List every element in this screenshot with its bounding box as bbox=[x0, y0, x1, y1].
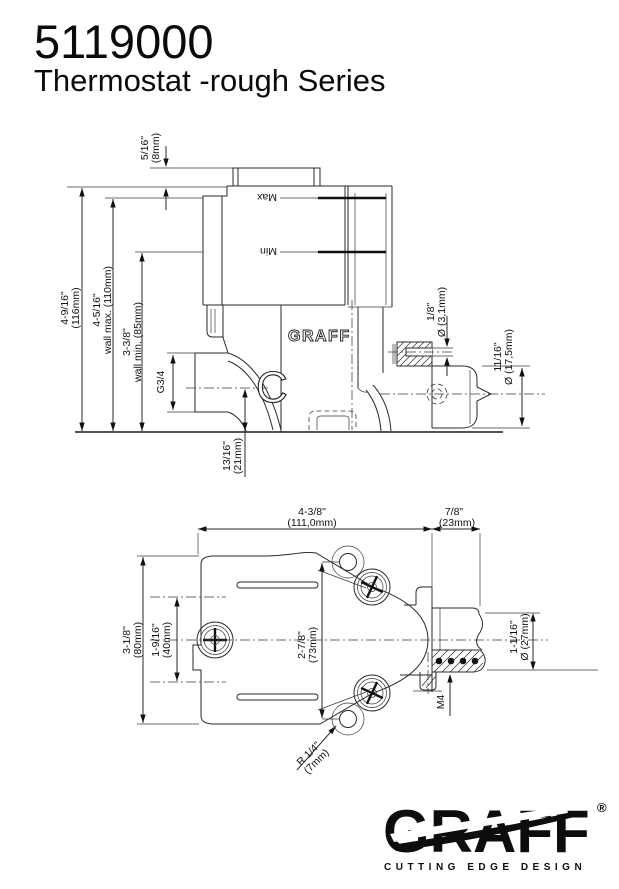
dim-tabs-spacing: 2-7/8" (73mm) bbox=[296, 627, 319, 663]
dim-holes-spacing: 1-9/16" (40mm) bbox=[150, 622, 173, 658]
dim-total-height-mm: (116mm) bbox=[70, 287, 82, 328]
side-section-view: Max Min 4-9/16" (116mm) 4-5/16" wall max… bbox=[59, 133, 545, 477]
dim-plate-height-mm: (8mm) bbox=[150, 133, 162, 163]
technical-drawing-canvas: Max Min 4-9/16" (116mm) 4-5/16" wall max… bbox=[0, 0, 619, 889]
dim-holes-spacing-mm: (40mm) bbox=[161, 622, 173, 658]
logo-registered-mark: ® bbox=[597, 800, 607, 815]
dim-tabs-spacing-mm: (73mm) bbox=[307, 627, 319, 663]
dim-body-height: 3-1/8" (80mm) bbox=[121, 622, 144, 658]
max-label: Max bbox=[256, 191, 277, 203]
max-depth-marker: Max bbox=[256, 191, 386, 203]
dim-outlet-dia: 1-1/16" Ø (27mm) bbox=[508, 613, 531, 660]
dim-body-width: 4-3/8" (111,0mm) bbox=[287, 506, 336, 529]
dim-center-offset-mm: (21mm) bbox=[232, 438, 244, 474]
dim-outlet-length-mm: (23mm) bbox=[439, 517, 475, 529]
dim-radius: R 1/4" (7mm) bbox=[294, 739, 332, 777]
dim-wall-max-mm: wall max. (110mm) bbox=[102, 266, 114, 355]
dim-plate-height: 5/16" (8mm) bbox=[139, 133, 162, 163]
port-thread-text: G3/4 bbox=[155, 370, 167, 393]
port-thread-label: G3/4 bbox=[155, 370, 167, 393]
plan-view-linework bbox=[150, 546, 548, 735]
dim-outlet-dia-mm: Ø (27mm) bbox=[519, 613, 531, 660]
screw-thread-label: M4 bbox=[435, 695, 447, 710]
dim-wall-min-mm: wall min. (85mm) bbox=[132, 302, 144, 383]
dim-pilot-hole-mm: Ø (3,1mm) bbox=[436, 287, 448, 337]
plan-view: 4-3/8" (111,0mm) 7/8" (23mm) 3-1/8" (80m… bbox=[121, 506, 598, 777]
min-label: Min bbox=[260, 245, 277, 257]
dim-cartridge-dia: 11/16" Ø (17,5mm) bbox=[492, 329, 515, 385]
spec-sheet-page: 5119000 Thermostat -rough Series bbox=[0, 0, 619, 889]
screw-bottom-right bbox=[354, 675, 390, 711]
dim-wall-min: 3-3/8" wall min. (85mm) bbox=[121, 302, 144, 383]
logo-tagline: CUTTING EDGE DESIGN bbox=[384, 862, 586, 873]
dim-body-height-mm: (80mm) bbox=[132, 622, 144, 658]
body-embossed-brand: GRAFF bbox=[288, 328, 351, 345]
dim-center-offset: 13/16" (21mm) bbox=[221, 438, 244, 474]
graff-logo: GRAFF ® CUTTING EDGE DESIGN bbox=[383, 798, 607, 873]
dim-outlet-length: 7/8" (23mm) bbox=[439, 506, 475, 529]
body-cast-letter: C bbox=[256, 363, 288, 412]
dim-total-height: 4-9/16" (116mm) bbox=[59, 287, 82, 328]
screw-top-right bbox=[354, 569, 390, 605]
dim-pilot-hole: 1/8" Ø (3,1mm) bbox=[425, 287, 448, 337]
dim-body-width-mm: (111,0mm) bbox=[287, 517, 336, 529]
dim-wall-max: 4-5/16" wall max. (110mm) bbox=[91, 266, 114, 355]
min-depth-marker: Min bbox=[260, 245, 386, 257]
side-view-linework bbox=[75, 168, 545, 432]
screw-thread-text: M4 bbox=[435, 695, 447, 710]
dim-cartridge-dia-mm: Ø (17,5mm) bbox=[503, 329, 515, 385]
